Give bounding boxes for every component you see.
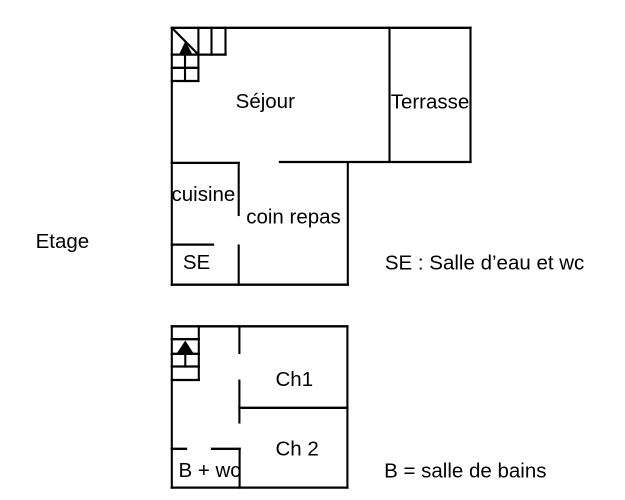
svg-text:Ch1: Ch1 — [275, 368, 313, 391]
svg-text:SE : Salle d’eau et wc: SE : Salle d’eau et wc — [385, 251, 584, 274]
svg-text:SE: SE — [183, 251, 210, 274]
svg-text:Etage: Etage — [36, 230, 90, 253]
svg-text:Terrasse: Terrasse — [391, 90, 470, 113]
svg-text:B = salle de bains: B = salle de bains — [384, 460, 546, 483]
svg-text:B + wc: B + wc — [178, 459, 240, 482]
svg-text:Séjour: Séjour — [236, 90, 295, 113]
svg-text:Ch 2: Ch 2 — [275, 438, 318, 461]
svg-text:cuisine: cuisine — [171, 183, 235, 206]
svg-text:coin repas: coin repas — [246, 205, 341, 228]
